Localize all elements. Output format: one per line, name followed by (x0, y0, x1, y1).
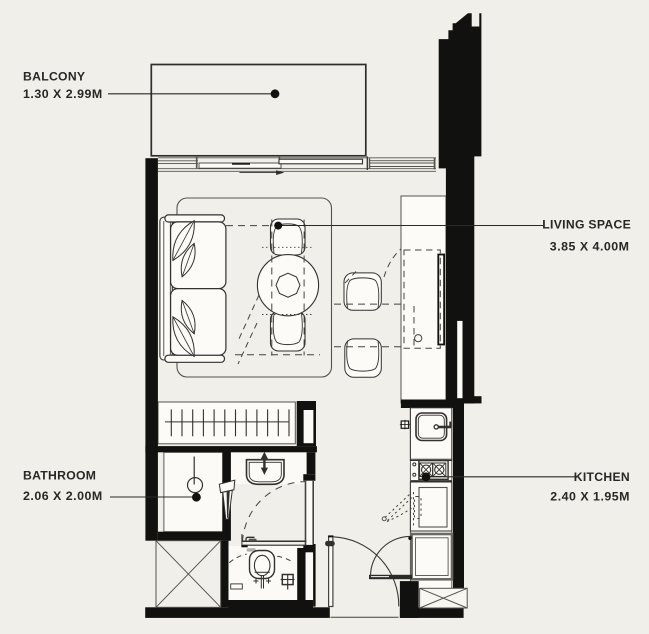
svg-text:2.06 X 2.00M: 2.06 X 2.00M (23, 489, 103, 503)
svg-text:BATHROOM: BATHROOM (23, 469, 96, 483)
svg-text:BALCONY: BALCONY (23, 69, 85, 83)
svg-text:LIVING SPACE: LIVING SPACE (542, 218, 631, 232)
svg-text:3.85 X 4.00M: 3.85 X 4.00M (550, 240, 630, 254)
svg-text:2.40 X 1.95M: 2.40 X 1.95M (550, 490, 630, 504)
svg-text:KITCHEN: KITCHEN (574, 470, 630, 484)
svg-text:1.30 X 2.99M: 1.30 X 2.99M (23, 87, 103, 101)
